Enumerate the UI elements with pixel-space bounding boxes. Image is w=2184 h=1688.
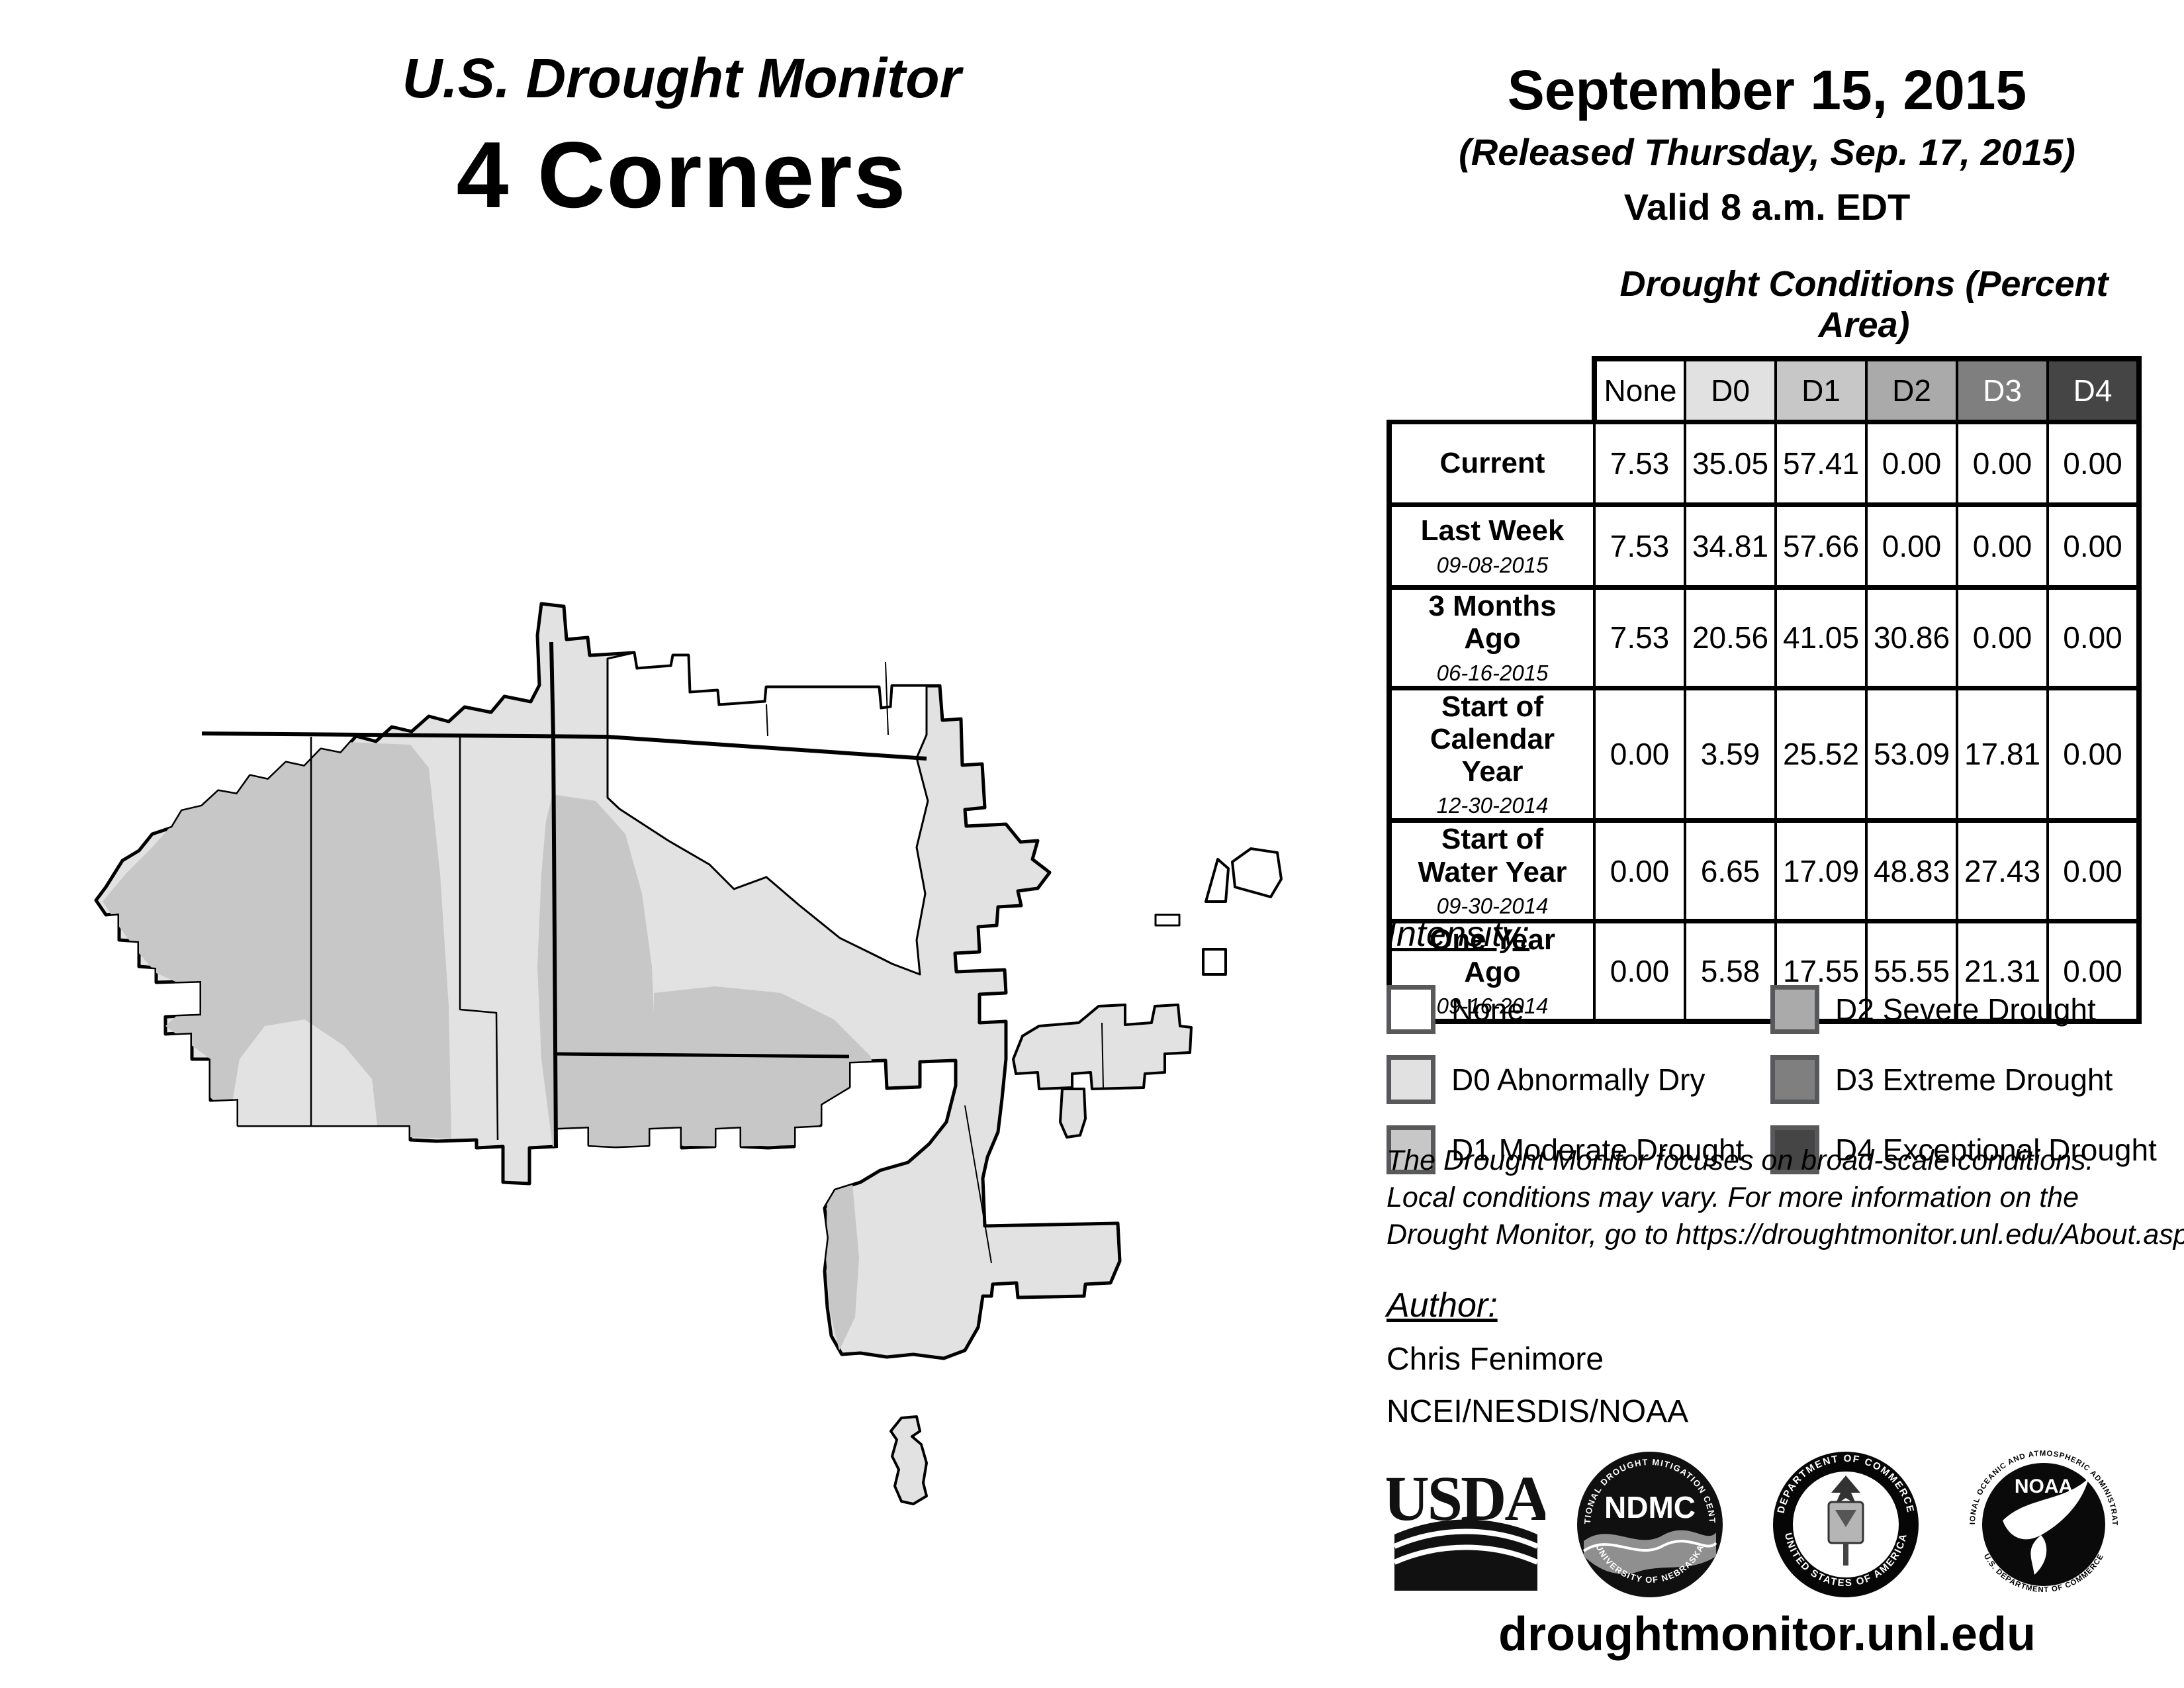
- table-row: Current 7.53 35.05 57.41 0.00 0.00 0.00: [1389, 422, 2139, 505]
- cell-value: 0.00: [1866, 422, 1957, 505]
- author-name: Chris Fenimore: [1387, 1341, 1688, 1378]
- cell-value: 0.00: [1866, 505, 1957, 588]
- cell-value: 0.00: [1957, 505, 2048, 588]
- column-header-d4: D4: [2048, 359, 2139, 422]
- cell-value: 17.09: [1776, 821, 1866, 921]
- row-label: Start of Calendar Year: [1398, 690, 1586, 788]
- column-header-d3: D3: [1957, 359, 2048, 422]
- region-title: 4 Corners: [185, 121, 1178, 230]
- table-row: Start of Water Year09-30-2014 0.00 6.65 …: [1389, 821, 2139, 921]
- valid-time: Valid 8 a.m. EDT: [1390, 185, 2144, 228]
- author-org: NCEI/NESDIS/NOAA: [1387, 1393, 1688, 1430]
- legend-item-d0: D0 Abnormally Dry: [1387, 1045, 1770, 1115]
- disclaimer-line: Local conditions may vary. For more info…: [1387, 1180, 2184, 1217]
- svg-text:NDMC: NDMC: [1604, 1490, 1696, 1524]
- legend-heading: Intensity:: [1387, 914, 2154, 955]
- none-swatch: [1387, 985, 1435, 1034]
- row-date: 09-08-2015: [1398, 553, 1586, 578]
- disclaimer-line: Drought Monitor, go to https://droughtmo…: [1387, 1217, 2184, 1254]
- row-label: Current: [1398, 447, 1586, 479]
- row-date: 12-30-2014: [1398, 793, 1586, 818]
- cell-value: 17.81: [1957, 688, 2048, 821]
- ndmc-logo: NDMC NATIONAL DROUGHT MITIGATION CENTER …: [1574, 1442, 1726, 1607]
- cell-value: 3.59: [1685, 688, 1776, 821]
- cell-value: 30.86: [1866, 588, 1957, 688]
- drought-map: [66, 596, 1324, 1536]
- drought-conditions-table-block: Drought Conditions (Percent Area) None D…: [1387, 263, 2142, 1024]
- legend-item-d2: D2 Severe Drought: [1770, 974, 2154, 1045]
- cell-value: 35.05: [1685, 422, 1776, 505]
- cell-value: 57.66: [1776, 505, 1866, 588]
- cell-value: 0.00: [2048, 505, 2139, 588]
- row-label: Start of Water Year: [1398, 823, 1586, 888]
- cell-value: 0.00: [1957, 422, 2048, 505]
- cell-value: 20.56: [1685, 588, 1776, 688]
- table-header-row: None D0 D1 D2 D3 D4: [1389, 359, 2139, 422]
- cell-value: 6.65: [1685, 821, 1776, 921]
- legend-label: None: [1451, 992, 1524, 1027]
- column-header-none: None: [1594, 359, 1685, 422]
- usda-logo: USDA: [1387, 1442, 1545, 1607]
- row-date: 06-16-2015: [1398, 661, 1586, 686]
- cell-value: 57.41: [1776, 422, 1866, 505]
- report-title-block: U.S. Drought Monitor 4 Corners: [185, 46, 1178, 230]
- report-title: U.S. Drought Monitor: [185, 46, 1178, 111]
- column-header-d2: D2: [1866, 359, 1957, 422]
- author-heading: Author:: [1387, 1286, 1688, 1325]
- website-url: droughtmonitor.unl.edu: [1390, 1607, 2144, 1662]
- d3-swatch: [1770, 1055, 1819, 1104]
- author-block: Author: Chris Fenimore NCEI/NESDIS/NOAA: [1387, 1286, 1688, 1430]
- d2-swatch: [1770, 985, 1819, 1034]
- row-label: 3 Months Ago: [1398, 590, 1586, 655]
- cell-value: 25.52: [1776, 688, 1866, 821]
- table-row: Start of Calendar Year12-30-2014 0.00 3.…: [1389, 688, 2139, 821]
- column-header-d0: D0: [1685, 359, 1776, 422]
- cell-value: 27.43: [1957, 821, 2048, 921]
- legend-label: D2 Severe Drought: [1835, 992, 2096, 1027]
- legend-item-d3: D3 Extreme Drought: [1770, 1045, 2154, 1115]
- legend-label: D0 Abnormally Dry: [1451, 1062, 1705, 1098]
- row-label: Last Week: [1398, 514, 1586, 547]
- cell-value: 7.53: [1594, 588, 1685, 688]
- department-of-commerce-seal: DEPARTMENT OF COMMERCE UNITED STATES OF …: [1770, 1442, 1922, 1607]
- agency-logos: USDA NDMC NATIONAL DROUGHT MITIGATION CE…: [1387, 1442, 2154, 1614]
- cell-value: 0.00: [1594, 688, 1685, 821]
- noaa-logo: NOAA NATIONAL OCEANIC AND ATMOSPHERIC AD…: [1964, 1442, 2123, 1607]
- release-date: (Released Thursday, Sep. 17, 2015): [1390, 130, 2144, 173]
- d0-swatch: [1387, 1055, 1435, 1104]
- column-header-d1: D1: [1776, 359, 1866, 422]
- table-title: Drought Conditions (Percent Area): [1592, 263, 2136, 346]
- cell-value: 0.00: [2048, 588, 2139, 688]
- disclaimer-line: The Drought Monitor focuses on broad-sca…: [1387, 1143, 2184, 1180]
- cell-value: 7.53: [1594, 505, 1685, 588]
- legend-label: D3 Extreme Drought: [1835, 1062, 2113, 1098]
- disclaimer-text: The Drought Monitor focuses on broad-sca…: [1387, 1143, 2184, 1254]
- cell-value: 41.05: [1776, 588, 1866, 688]
- table-row: Last Week09-08-2015 7.53 34.81 57.66 0.0…: [1389, 505, 2139, 588]
- cell-value: 34.81: [1685, 505, 1776, 588]
- cell-value: 48.83: [1866, 821, 1957, 921]
- date-block: September 15, 2015 (Released Thursday, S…: [1390, 58, 2144, 228]
- table-corner-cell: [1389, 359, 1594, 422]
- map-date: September 15, 2015: [1390, 58, 2144, 122]
- cell-value: 0.00: [1594, 821, 1685, 921]
- drought-monitor-report: { "title": { "line1": "U.S. Drought Moni…: [0, 0, 2184, 1688]
- cell-value: 7.53: [1594, 422, 1685, 505]
- table-row: 3 Months Ago06-16-2015 7.53 20.56 41.05 …: [1389, 588, 2139, 688]
- cell-value: 53.09: [1866, 688, 1957, 821]
- map-main-region: [96, 604, 1120, 1358]
- cell-value: 0.00: [1957, 588, 2048, 688]
- svg-text:NOAA: NOAA: [2015, 1476, 2073, 1497]
- cell-value: 0.00: [2048, 688, 2139, 821]
- cell-value: 0.00: [2048, 422, 2139, 505]
- legend-item-none: None: [1387, 974, 1770, 1045]
- cell-value: 0.00: [2048, 821, 2139, 921]
